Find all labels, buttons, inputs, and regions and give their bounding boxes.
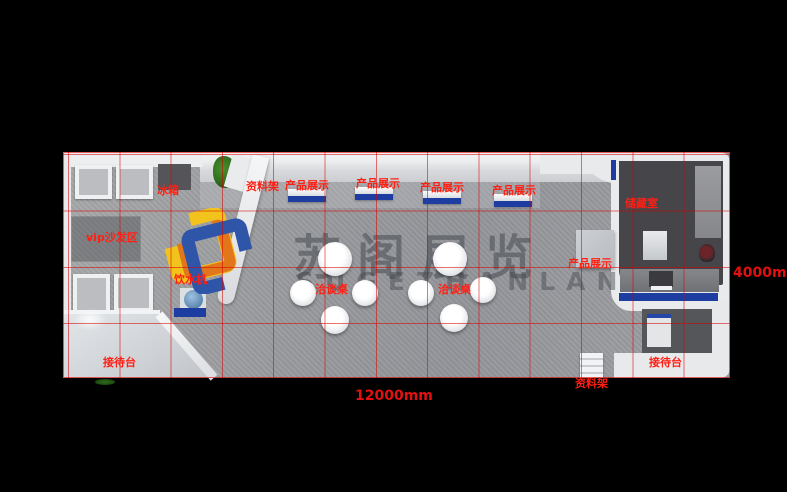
chair [440, 304, 468, 332]
label-product-display-3: 产品展示 [420, 182, 464, 194]
reception-pedestal [647, 314, 671, 347]
dimension-width: 12000mm [355, 388, 433, 404]
monitor [649, 271, 673, 287]
vip-seat [73, 274, 110, 314]
label-product-display-1: 产品展示 [285, 180, 329, 192]
dimension-depth: 4000mm [733, 265, 787, 281]
vip-seat [114, 274, 153, 312]
label-product-display-5: 产品展示 [568, 258, 612, 270]
storage-pedestal [643, 231, 667, 260]
vip-seat [116, 165, 153, 199]
label-rack-top: 资料架 [246, 181, 279, 193]
chair [290, 280, 316, 306]
chair [352, 280, 378, 306]
meeting-table [433, 242, 467, 276]
label-reception-left: 接待台 [103, 357, 136, 369]
meeting-table [318, 242, 352, 276]
label-reception-right: 接待台 [649, 357, 682, 369]
label-fridge: 冰箱 [157, 185, 179, 197]
keyboard [651, 286, 672, 290]
chair [408, 280, 434, 306]
spotlight-glow [73, 310, 107, 330]
office-chair [699, 244, 715, 262]
blue-stripe [619, 293, 718, 301]
label-meeting-table-1: 洽谈桌 [315, 284, 348, 296]
blue-accent [611, 160, 616, 180]
label-product-display-2: 产品展示 [356, 178, 400, 190]
vip-left-wall [63, 152, 71, 314]
label-rack-bottom: 资料架 [575, 378, 608, 390]
label-water-dispenser: 饮水机 [174, 274, 207, 286]
label-product-display-4: 产品展示 [492, 185, 536, 197]
chair [321, 306, 349, 334]
vip-seat [75, 165, 112, 199]
plant-tuft-icon [95, 379, 115, 385]
literature-rack-bottom [580, 353, 603, 378]
label-meeting-table-2: 洽谈桌 [438, 284, 471, 296]
label-vip-sofa-area: vip沙发区 [86, 232, 138, 244]
storage-cabinet [695, 166, 721, 238]
label-storage-room: 储藏室 [625, 198, 658, 210]
blue-shelf [174, 308, 206, 317]
render-canvas: { "scene": { "description_cn": "展台设计俯视效果… [0, 0, 787, 492]
chair [470, 277, 496, 303]
